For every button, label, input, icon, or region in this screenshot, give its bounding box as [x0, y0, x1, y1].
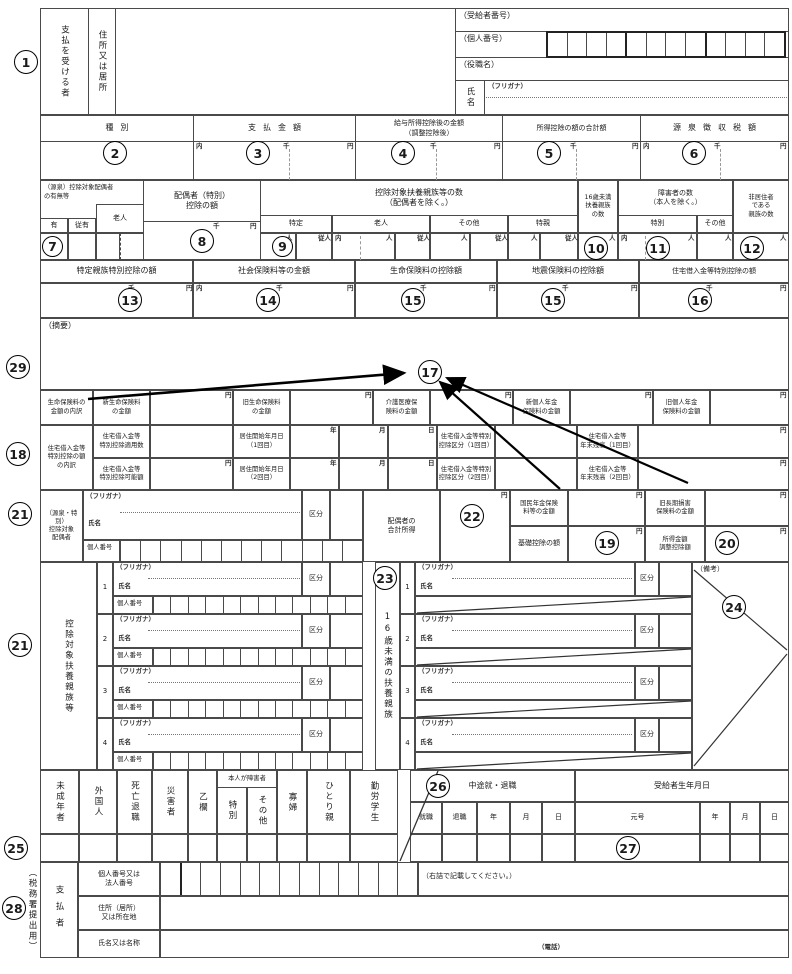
furigana-label: （フリガナ） [488, 83, 527, 90]
housing-breakdown-label: 住宅借入金等 特別控除の額 の内訳 [40, 425, 93, 490]
furigana-divider [148, 682, 300, 683]
shakai-hoken-header: 社会保険料等の金額 [193, 260, 355, 283]
marker-27: 27 [616, 836, 640, 860]
dependent-kubun-field[interactable] [330, 718, 363, 752]
flag-kafu-field[interactable] [277, 834, 307, 862]
shimei-label: 氏名 [420, 635, 433, 642]
personal-number-boxes[interactable] [546, 31, 786, 58]
recipient-address-field[interactable] [115, 8, 456, 115]
position-cell[interactable]: （役職名） [455, 57, 789, 81]
sen-marker: 千 [276, 285, 283, 292]
flag-minor-field[interactable] [40, 834, 79, 862]
junin-marker: 従人 [318, 235, 331, 242]
flag-working-student-field[interactable] [350, 834, 398, 862]
under16-kubun-field[interactable] [659, 718, 692, 752]
payment-amount-header: 支払金額 [193, 115, 356, 142]
marker-8: 8 [190, 229, 214, 253]
yen-marker: 円 [780, 528, 787, 535]
dependent-row-number: 4 [97, 718, 113, 770]
shin-nenkin-label: 新個人年金 保険料の金額 [513, 390, 570, 425]
housing-zandaka1-label: 住宅借入金等 年末残高（1回目） [577, 425, 638, 458]
shimei-label: 氏名 [118, 739, 131, 746]
furigana-label: （フリガナ） [116, 616, 155, 623]
yen-marker: 円 [636, 492, 643, 499]
yen-marker: 円 [347, 143, 354, 150]
dependent-kubun-label: 区分 [302, 666, 330, 700]
spouse-total-income-label: 配偶者の 合計所得 [363, 490, 440, 562]
flag-death-retire-field[interactable] [117, 834, 152, 862]
uchi-marker: 内 [643, 143, 650, 150]
tel-label: （電話） [538, 944, 564, 951]
housing-start2-label: 居住開始年月日 （2回目） [233, 458, 290, 490]
after-deduction-field[interactable] [355, 141, 503, 180]
shin-seimei-field[interactable] [150, 390, 233, 425]
uchi-marker: 内 [196, 285, 203, 292]
marker-21b: 21 [8, 633, 32, 657]
dependent-kubun-field[interactable] [330, 666, 363, 700]
uchi-divider [360, 236, 361, 260]
tsuki-marker: 月 [379, 460, 386, 467]
dependent-kubun-label: 区分 [302, 614, 330, 648]
housing-kubun2-label: 住宅借入金等特別 控除区分（2回目） [437, 458, 495, 490]
amount-divider [436, 149, 437, 180]
flag-minor-label: 未成年者 [40, 770, 79, 834]
marker-20: 20 [715, 531, 739, 555]
under16-row-number: 1 [400, 562, 415, 614]
sonota-header: その他 [430, 215, 508, 233]
kaigo-label: 介護医療保 険料の金額 [373, 390, 430, 425]
dependent-kubun-field[interactable] [330, 614, 363, 648]
furigana-label: （フリガナ） [116, 720, 155, 727]
marker-12: 12 [740, 236, 764, 260]
yen-marker: 円 [347, 285, 354, 292]
shushoku-header: 就職 [410, 802, 442, 834]
under16-crossed-strip [415, 648, 692, 666]
nin-marker: 人 [531, 235, 538, 242]
dependent-kojin-label-cell: 個人番号 [113, 596, 153, 614]
disabled-tokubetsu-header: 特別 [618, 215, 697, 233]
withheld-tax-header: 源泉徴収税額 [640, 115, 789, 142]
junin-marker: 従人 [495, 235, 508, 242]
nin-marker: 人 [461, 235, 468, 242]
spouse-section-label: （源泉・特別） 控除対象 配偶者 [40, 490, 83, 562]
kiso-kojo-label: 基礎控除の額 [510, 526, 568, 562]
nen-header: 年 [700, 802, 730, 834]
shimei-label: 氏名 [88, 520, 101, 527]
furigana-label: （フリガナ） [418, 668, 457, 675]
flag-kafu-label: 寡婦 [277, 770, 307, 834]
housing-zandaka2-label: 住宅借入金等 年末残高（2回目） [577, 458, 638, 490]
yen-marker: 円 [780, 427, 787, 434]
spouse-kubun-field[interactable] [330, 490, 363, 540]
dependent-kubun-field[interactable] [330, 562, 363, 596]
amount-divider [576, 149, 577, 180]
midterm-hi-field[interactable] [542, 834, 575, 862]
marker-23: 23 [373, 566, 397, 590]
dependent-kojin-boxes[interactable] [153, 596, 363, 614]
marker-13: 13 [118, 288, 142, 312]
birth-tsuki-field[interactable] [730, 834, 760, 862]
flag-sonota-field[interactable] [247, 834, 277, 862]
furigana-divider [452, 734, 632, 735]
junin-marker: 従人 [565, 235, 578, 242]
hi-marker: 日 [428, 427, 435, 434]
furigana-label: （フリガナ） [418, 720, 457, 727]
furigana-label: （フリガナ） [116, 668, 155, 675]
dependent-kubun-label: 区分 [302, 562, 330, 596]
dependent-row-number: 2 [97, 614, 113, 666]
housing-kubun1-label: 住宅借入金等特別 控除区分（1回目） [437, 425, 495, 458]
birthdate-header: 受給者生年月日 [575, 770, 789, 802]
marker-4: 4 [391, 141, 415, 165]
flag-disaster-label: 災害者 [152, 770, 188, 834]
sen-marker: 千 [213, 223, 220, 230]
housing-kubun2-field[interactable] [495, 458, 577, 490]
payer-address-label: 住所（居所） 又は所在地 [78, 896, 160, 930]
sen-marker: 千 [570, 143, 577, 150]
under16-kubun-field[interactable] [659, 666, 692, 700]
marker-3: 3 [246, 141, 270, 165]
flag-foreigner-label: 外国人 [79, 770, 117, 834]
marker-5: 5 [537, 141, 561, 165]
spouse-rojin-header: 老人 [96, 204, 144, 233]
recipient-number-cell[interactable]: （受給者番号） [455, 8, 789, 32]
yen-marker: 円 [780, 285, 787, 292]
dependent-kojin-boxes[interactable] [153, 752, 363, 770]
shushoku-field[interactable] [410, 834, 442, 862]
spouse-juari-header: 従有 [68, 218, 96, 233]
shimei-label: 氏名 [118, 635, 131, 642]
spouse-rojin-field[interactable] [96, 233, 120, 260]
marker-10: 10 [584, 236, 608, 260]
housing-tekiyosu-label: 住宅借入金等 特別控除適用数 [93, 425, 150, 458]
gengo-header: 元号 [575, 802, 700, 834]
kojin-bango-label: 個人番号 [114, 649, 152, 660]
kokumin-nenkin-label: 国民年金保険 料等の金額 [510, 490, 568, 526]
biko-field[interactable]: （備考） [692, 562, 789, 770]
under16-kubun-field[interactable] [659, 614, 692, 648]
marker-15b: 15 [541, 288, 565, 312]
junin-marker: 従人 [417, 235, 430, 242]
spouse-kojin-label-cell: 個人番号 [83, 540, 120, 562]
dependent-row-number: 3 [97, 666, 113, 718]
marker-6: 6 [682, 141, 706, 165]
payee-label: 支払を受ける者 [40, 8, 89, 115]
marker-11: 11 [646, 236, 670, 260]
recipient-number-label: （受給者番号） [456, 9, 788, 22]
hi-header: 日 [542, 802, 575, 834]
nin-marker: 人 [780, 235, 787, 242]
uchi-marker: 内 [196, 143, 203, 150]
uchi-marker: 内 [335, 235, 342, 242]
nen-marker: 年 [330, 427, 337, 434]
flag-self-disabled-header: 本人が障害者 [217, 770, 277, 788]
furigana-divider [148, 734, 300, 735]
marker-14: 14 [256, 288, 280, 312]
flag-sonota-label: その他 [247, 787, 277, 834]
flag-death-retire-label: 死亡退職 [117, 770, 152, 834]
under16-row-number: 3 [400, 666, 415, 718]
gensen-choshu-hyo-form: { "markers":{"m1":"1","m2":"2","m3":"3",… [0, 0, 792, 974]
marker-16: 16 [688, 288, 712, 312]
kyu-seimei-label: 旧生命保険料 の金額 [233, 390, 290, 425]
under16-crossed-strip [415, 596, 692, 614]
marker-21: 21 [8, 502, 32, 526]
flag-foreigner-field[interactable] [79, 834, 117, 862]
flag-hitorioya-label: ひとり親 [307, 770, 350, 834]
summary-label: （摘要） [41, 319, 788, 332]
marker-1: 1 [14, 50, 38, 74]
yen-marker: 円 [780, 143, 787, 150]
marker-15: 15 [401, 288, 425, 312]
marker-29: 29 [6, 355, 30, 379]
type-header: 種別 [40, 115, 194, 142]
furigana-divider [120, 512, 300, 513]
shimei-label: 氏名 [420, 583, 433, 590]
furigana-divider [486, 97, 787, 98]
housing-zandaka2-field[interactable] [638, 458, 789, 490]
marker-17: 17 [418, 360, 442, 384]
flag-hitorioya-field[interactable] [307, 834, 350, 862]
under16-crossed-strip [415, 752, 692, 770]
address-label: 住所又は居所 [88, 8, 116, 115]
kojin-bango-label: 個人番号 [114, 701, 152, 712]
yen-marker: 円 [505, 392, 512, 399]
spouse-kubun-label: 区分 [302, 490, 330, 540]
furigana-label: （フリガナ） [418, 616, 457, 623]
biko-label: （備考） [693, 563, 788, 575]
tsuki-header: 月 [510, 802, 542, 834]
yen-marker: 円 [186, 285, 193, 292]
dependents-count-header: 控除対象扶養親族等の数 （配偶者を除く。） [260, 180, 578, 216]
payer-number-boxes[interactable] [160, 862, 418, 896]
kyu-choki-label: 旧長期損害 保険料の金額 [645, 490, 705, 526]
under16-kubun-label: 区分 [635, 562, 659, 596]
marker-26: 26 [426, 774, 450, 798]
yen-marker: 円 [780, 460, 787, 467]
jutaku-header: 住宅借入金等特別控除の額 [639, 260, 789, 283]
shimei-label: 氏名 [118, 583, 131, 590]
spouse-juari-field[interactable] [68, 233, 96, 260]
flag-tokubetsu-field[interactable] [217, 834, 247, 862]
under16-kubun-label: 区分 [635, 718, 659, 752]
nen-header: 年 [477, 802, 510, 834]
shin-nenkin-field[interactable] [570, 390, 653, 425]
dependent-row-number: 1 [97, 562, 113, 614]
flag-otsuran-label: 乙欄 [188, 770, 217, 834]
marker-28: 28 [2, 896, 26, 920]
flag-working-student-label: 勤労学生 [350, 770, 398, 834]
furigana-divider [452, 682, 632, 683]
payer-name-field[interactable] [160, 930, 789, 958]
tsuki-marker: 月 [379, 427, 386, 434]
under16-row-number: 4 [400, 718, 415, 770]
under16-kubun-field[interactable] [659, 562, 692, 596]
recipient-name-label: 氏名 [455, 80, 485, 115]
dependent-kojin-label-cell: 個人番号 [113, 648, 153, 666]
housing-kubun1-field[interactable] [495, 425, 577, 458]
tokutei-shinzoku-field[interactable] [40, 283, 193, 318]
under16-section-label: 16歳未満の扶養親族 [375, 562, 400, 770]
yen-marker: 円 [494, 143, 501, 150]
jutaku-field[interactable] [639, 283, 789, 318]
flag-disaster-field[interactable] [152, 834, 188, 862]
spouse-rojin-field2[interactable] [120, 233, 144, 260]
tokutei-shinzoku-header: 特定親族特別控除の額 [40, 260, 193, 283]
yen-marker: 円 [489, 285, 496, 292]
under16-row-number: 2 [400, 614, 415, 666]
tsuki-header: 月 [730, 802, 760, 834]
marker-19: 19 [595, 531, 619, 555]
kyu-nenkin-label: 旧個人年金 保険料の金額 [653, 390, 710, 425]
kaigo-field[interactable] [430, 390, 513, 425]
yen-marker: 円 [632, 143, 639, 150]
midterm-tsuki-field[interactable] [510, 834, 542, 862]
housing-kanogaku-field[interactable] [150, 458, 233, 490]
amount-divider [289, 149, 290, 180]
flag-otsuran-field[interactable] [188, 834, 217, 862]
marker-18: 18 [6, 442, 30, 466]
sen-marker: 千 [714, 143, 721, 150]
amount-divider [720, 149, 721, 180]
marker-7: 7 [42, 236, 63, 257]
nonresident-header: 非居住者 である 親族の数 [733, 180, 789, 233]
dependent-kojin-label-cell: 個人番号 [113, 700, 153, 718]
yen-marker: 円 [645, 392, 652, 399]
yen-marker: 円 [225, 392, 232, 399]
housing-tekiyosu-field[interactable] [150, 425, 233, 458]
sen-marker: 千 [562, 285, 569, 292]
under16-header: 16歳未満 扶養親族 の数 [578, 180, 618, 233]
chosei-kojo-label: 所得金額 調整控除額 [645, 526, 705, 562]
spouse-kojin-boxes[interactable] [120, 540, 363, 562]
insurance-breakdown-label: 生命保険料の 金額の内訳 [40, 390, 93, 425]
position-label: （役職名） [456, 58, 788, 71]
payer-number-label: 個人番号又は 法人番号 [78, 862, 160, 896]
nin-marker: 人 [725, 235, 732, 242]
under16-crossed-strip [415, 700, 692, 718]
dependent-kojin-boxes[interactable] [153, 700, 363, 718]
sen-marker: 千 [430, 143, 437, 150]
marker-25: 25 [4, 836, 28, 860]
marker-24: 24 [722, 595, 746, 619]
shimei-label: 氏名 [118, 687, 131, 694]
shin-seimei-label: 新生命保険料 の金額 [93, 390, 150, 425]
furigana-divider [452, 578, 632, 579]
furigana-label: （フリガナ） [418, 564, 457, 571]
hi-marker: 日 [428, 460, 435, 467]
marker-2: 2 [103, 141, 127, 165]
furigana-divider [148, 578, 300, 579]
hi-header: 日 [760, 802, 789, 834]
birth-nen-field[interactable] [700, 834, 730, 862]
taishoku-field[interactable] [442, 834, 477, 862]
housing-kanogaku-label: 住宅借入金等 特別控除可能額 [93, 458, 150, 490]
disabled-sonota-header: その他 [697, 215, 733, 233]
kojin-bango-label: 個人番号 [114, 597, 152, 608]
kojin-bango-label: 個人番号 [114, 753, 152, 764]
yen-marker: 円 [250, 223, 257, 230]
seimei-hoken-header: 生命保険料の控除額 [355, 260, 497, 283]
dependent-kubun-label: 区分 [302, 718, 330, 752]
nin-marker: 人 [688, 235, 695, 242]
total-deductions-header: 所得控除の額の合計額 [502, 115, 641, 142]
spouse-ari-header: 有 [40, 218, 68, 233]
right-align-note: （右詰で記載してください。） [419, 863, 788, 882]
marker-9: 9 [272, 236, 293, 257]
yen-marker: 円 [631, 285, 638, 292]
yen-marker: 円 [636, 528, 643, 535]
after-deduction-header: 給与所得控除後の金額 （調整控除後） [355, 115, 503, 142]
housing-start1-label: 居住開始年月日 （1回目） [233, 425, 290, 458]
tokutei-header: 特定 [260, 215, 332, 233]
disabled-header: 障害者の数 （本人を除く。） [618, 180, 733, 216]
furigana-label: （フリガナ） [116, 564, 155, 571]
kojin-bango-label: 個人番号 [84, 541, 119, 552]
dependents-left-label: 控除対象扶養親族等 [40, 562, 97, 770]
kyu-seimei-field[interactable] [290, 390, 373, 425]
under16-kubun-label: 区分 [635, 666, 659, 700]
sen-marker: 千 [283, 143, 290, 150]
yen-marker: 円 [365, 392, 372, 399]
payer-label: 支払者 [40, 862, 78, 958]
jishin-hoken-header: 地震保険料の控除額 [497, 260, 639, 283]
nen-marker: 年 [330, 460, 337, 467]
spouse-status-label: （源泉）控除対象配偶者 の有無等 [41, 181, 143, 201]
payment-amount-field[interactable] [193, 141, 356, 180]
nin-marker: 人 [386, 235, 393, 242]
uchi-marker: 内 [621, 235, 628, 242]
tokushin-header: 特親 [508, 215, 578, 233]
dependent-kojin-label-cell: 個人番号 [113, 752, 153, 770]
midterm-nen-field[interactable] [477, 834, 510, 862]
shimei-label: 氏名 [420, 739, 433, 746]
payer-address-field[interactable] [160, 896, 789, 930]
payer-name-label: 氏名又は名称 [78, 930, 160, 958]
marker-22: 22 [460, 504, 484, 528]
kyu-nenkin-field[interactable] [710, 390, 789, 425]
shimei-label: 氏名 [420, 687, 433, 694]
furigana-label: （フリガナ） [86, 493, 125, 500]
yen-marker: 円 [225, 460, 232, 467]
tax-office-copy-label: （税務署提出用） [24, 862, 40, 958]
flag-tokubetsu-label: 特別 [217, 787, 247, 834]
kokumin-nenkin-field[interactable] [568, 490, 645, 526]
payer-number-note-cell: （右詰で記載してください。） [418, 862, 789, 896]
dependent-kojin-boxes[interactable] [153, 648, 363, 666]
yen-marker: 円 [501, 492, 508, 499]
spouse-deduction-header: 配偶者（特別） 控除の額 [143, 180, 261, 222]
taishoku-header: 退職 [442, 802, 477, 834]
furigana-divider [452, 630, 632, 631]
yen-marker: 円 [780, 492, 787, 499]
nin-marker: 人 [609, 235, 616, 242]
yen-marker: 円 [780, 392, 787, 399]
kyu-choki-field[interactable] [705, 490, 789, 526]
birth-hi-field[interactable] [760, 834, 789, 862]
rojin-header: 老人 [332, 215, 430, 233]
under16-kubun-label: 区分 [635, 614, 659, 648]
housing-zandaka1-field[interactable] [638, 425, 789, 458]
summary-field[interactable]: （摘要） [40, 318, 789, 390]
furigana-divider [148, 630, 300, 631]
